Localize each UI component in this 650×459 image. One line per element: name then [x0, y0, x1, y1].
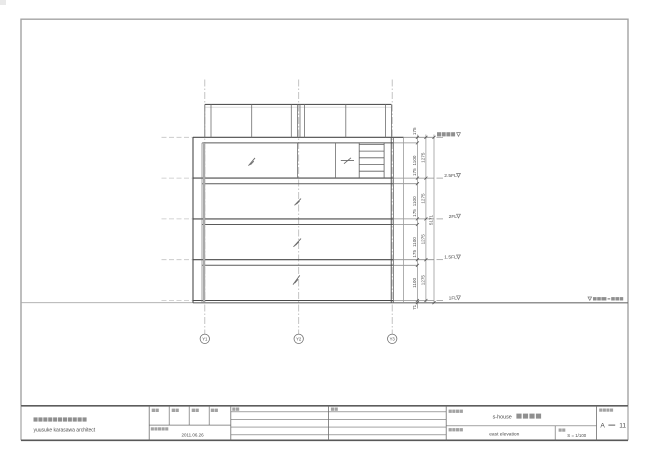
svg-text:Y2: Y2 — [296, 337, 302, 342]
svg-text:2.5FL: 2.5FL — [444, 173, 457, 179]
svg-text:71: 71 — [412, 304, 417, 310]
svg-text:yuusuke karasawa architect: yuusuke karasawa architect — [34, 428, 96, 434]
svg-text:1.5FL: 1.5FL — [444, 255, 457, 261]
svg-text:s-house: s-house — [493, 415, 512, 421]
svg-text:1275: 1275 — [420, 234, 425, 245]
svg-text:175: 175 — [412, 127, 417, 135]
svg-text:S = 1/100: S = 1/100 — [567, 433, 586, 438]
svg-text:175: 175 — [412, 168, 417, 176]
svg-text:1275: 1275 — [420, 152, 425, 163]
svg-text:1100: 1100 — [412, 196, 417, 206]
svg-text:175: 175 — [412, 209, 417, 217]
svg-text:Y3: Y3 — [390, 337, 396, 342]
svg-text:1FL: 1FL — [449, 295, 458, 301]
svg-text:A: A — [600, 422, 605, 429]
svg-text:175: 175 — [412, 250, 417, 258]
svg-text:2011.06.26: 2011.06.26 — [182, 432, 205, 437]
svg-text:Y1: Y1 — [202, 337, 208, 342]
svg-text:11: 11 — [619, 422, 626, 429]
svg-text:2FL: 2FL — [449, 214, 458, 220]
svg-text:east elevation: east elevation — [489, 432, 519, 438]
svg-text:1275: 1275 — [420, 193, 425, 204]
svg-text:5171: 5171 — [429, 214, 434, 225]
svg-text:1100: 1100 — [412, 237, 417, 247]
svg-text:1275: 1275 — [420, 275, 425, 286]
svg-text:1100: 1100 — [412, 278, 417, 288]
svg-text:1100: 1100 — [412, 155, 417, 165]
